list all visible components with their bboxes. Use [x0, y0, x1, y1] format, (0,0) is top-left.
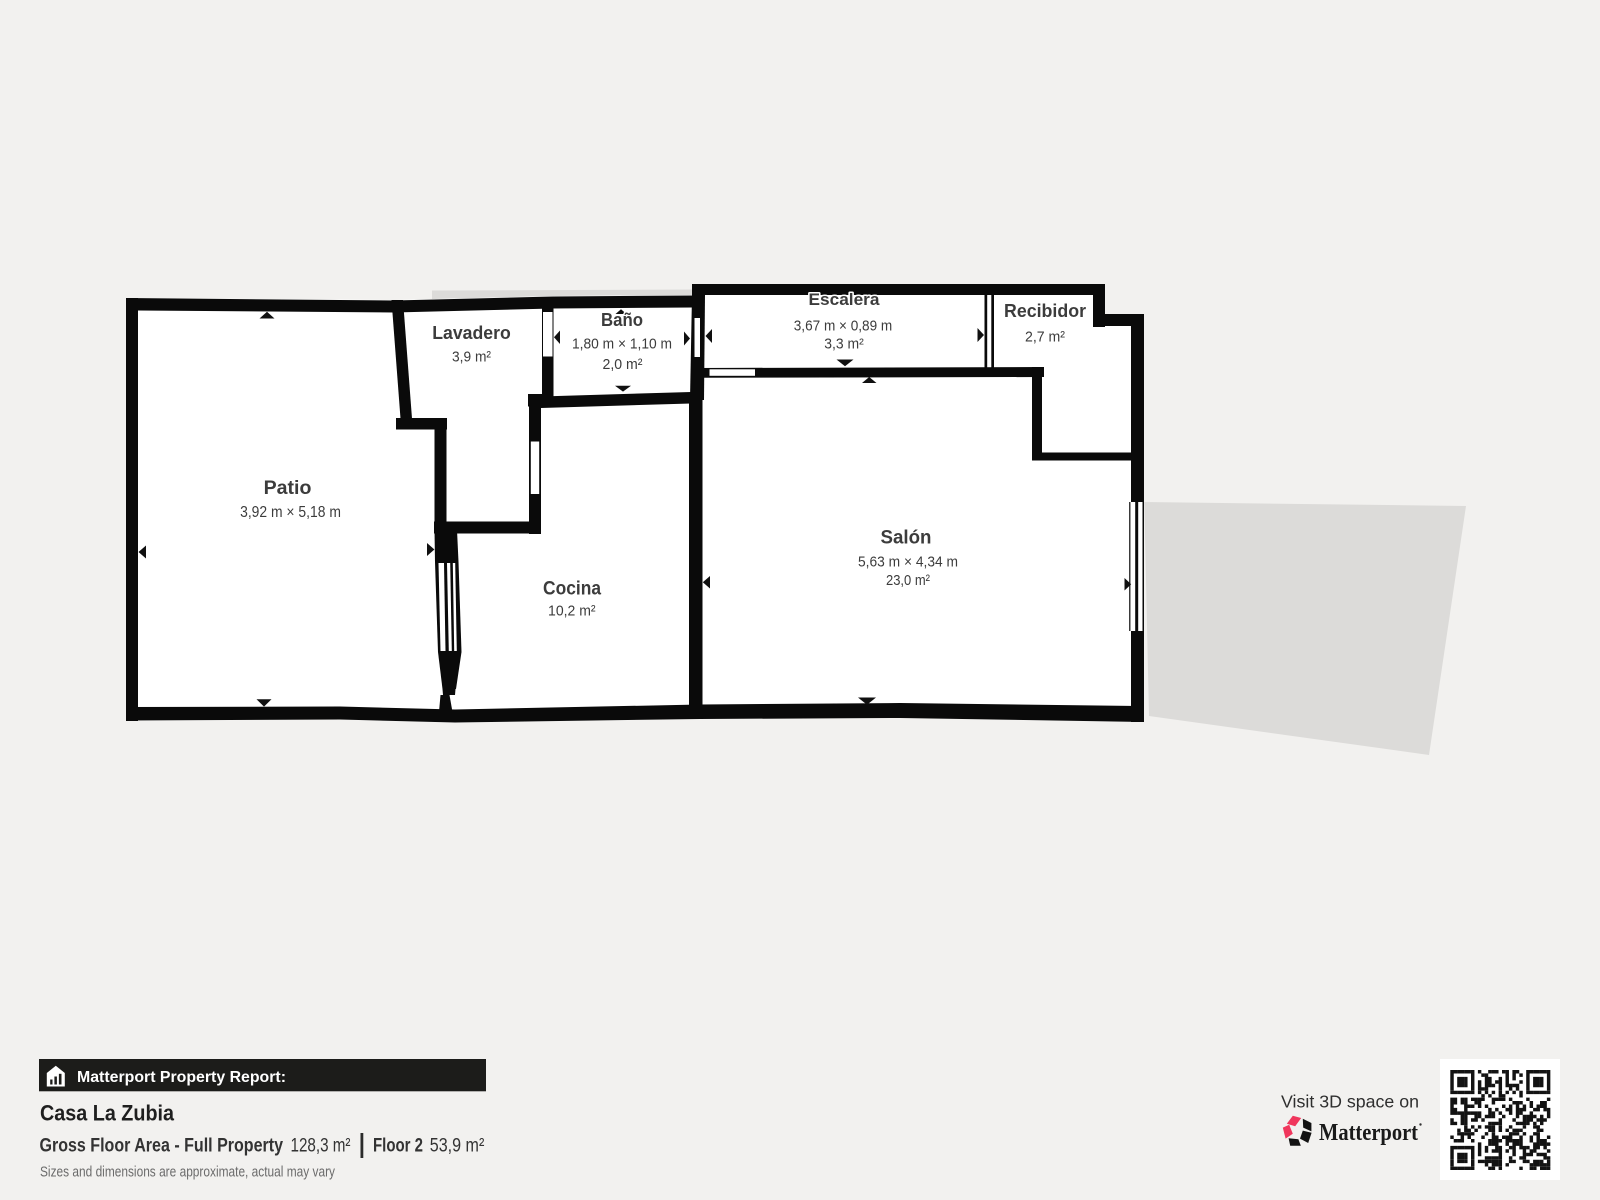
svg-text:Cocina: Cocina [543, 578, 601, 600]
svg-text:3,92 m × 5,18 m: 3,92 m × 5,18 m [240, 504, 341, 521]
svg-text:Patio: Patio [264, 477, 312, 499]
svg-text:10,2 m²: 10,2 m² [548, 603, 596, 620]
svg-text:1,80 m × 1,10 m: 1,80 m × 1,10 m [572, 336, 672, 353]
svg-text:2,7 m²: 2,7 m² [1025, 329, 1065, 346]
svg-text:Baño: Baño [601, 310, 643, 330]
svg-text:Visit 3D space on: Visit 3D space on [1281, 1092, 1419, 1112]
svg-text:2,0 m²: 2,0 m² [603, 356, 643, 373]
svg-text:Recibidor: Recibidor [1004, 301, 1086, 321]
svg-text:Casa La Zubia: Casa La Zubia [40, 1100, 174, 1125]
svg-text:23,0 m²: 23,0 m² [886, 572, 930, 589]
svg-text:128,3 m²: 128,3 m² [291, 1135, 351, 1157]
svg-text:3,9 m²: 3,9 m² [452, 349, 491, 366]
svg-text:5,63 m × 4,34 m: 5,63 m × 4,34 m [858, 554, 958, 571]
svg-text:Floor 2: Floor 2 [373, 1135, 423, 1157]
svg-text:3,3 m²: 3,3 m² [824, 337, 864, 353]
svg-text:3,67 m × 0,89 m: 3,67 m × 0,89 m [794, 319, 893, 335]
svg-text:Salón: Salón [881, 527, 932, 549]
svg-text:Sizes and dimensions are appro: Sizes and dimensions are approximate, ac… [40, 1164, 335, 1181]
svg-text:Lavadero: Lavadero [432, 323, 511, 343]
svg-text:Matterport: Matterport [1319, 1120, 1418, 1146]
svg-text:Matterport Property Report:: Matterport Property Report: [77, 1069, 286, 1086]
svg-text:Escalera: Escalera [809, 291, 881, 309]
svg-text:53,9 m²: 53,9 m² [430, 1135, 485, 1157]
svg-text:Gross Floor Area - Full Proper: Gross Floor Area - Full Property [40, 1135, 284, 1157]
